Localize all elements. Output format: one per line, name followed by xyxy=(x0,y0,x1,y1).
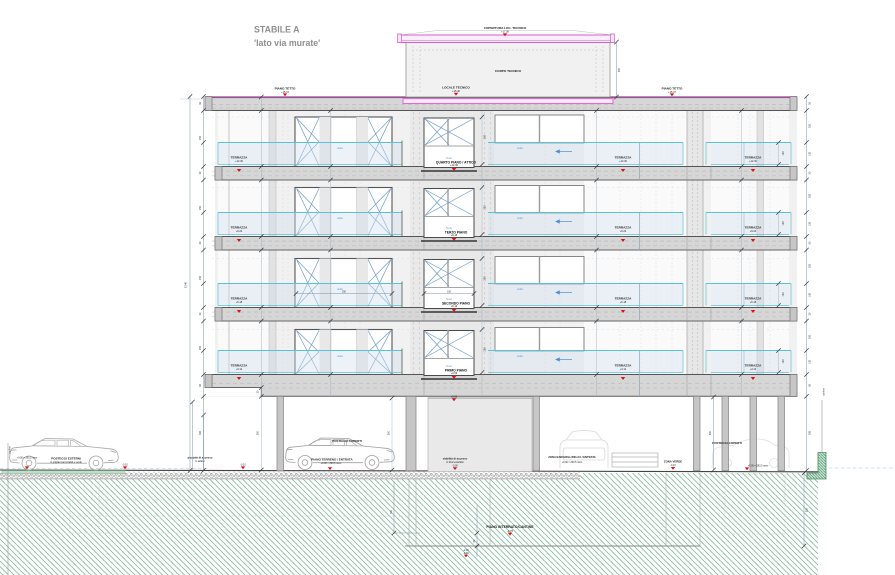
svg-text:vetro: vetro xyxy=(517,216,523,220)
svg-text:250: 250 xyxy=(484,205,487,210)
svg-text:TERRAZZA: TERRAZZA xyxy=(745,226,762,230)
svg-text:300: 300 xyxy=(709,430,712,435)
svg-text:-0.10: -0.10 xyxy=(240,464,246,467)
svg-text:TERRAZZA: TERRAZZA xyxy=(615,297,632,301)
svg-text:confine: confine xyxy=(9,445,12,453)
svg-text:Testo: Testo xyxy=(446,226,453,230)
svg-text:+9.24: +9.24 xyxy=(750,230,757,233)
svg-text:+6.18: +6.18 xyxy=(750,301,757,304)
svg-text:-2.78: -2.78 xyxy=(507,529,513,533)
svg-text:250: 250 xyxy=(484,276,487,281)
svg-text:TERRAZZA: TERRAZZA xyxy=(615,364,632,368)
svg-text:POSTEGGI COPERTI: POSTEGGI COPERTI xyxy=(712,441,742,445)
svg-text:250: 250 xyxy=(199,205,202,210)
svg-text:TERRAZZA: TERRAZZA xyxy=(615,226,632,230)
svg-text:vetro: vetro xyxy=(337,216,343,220)
svg-text:-0.05: -0.05 xyxy=(452,464,458,467)
svg-text:+15.37: +15.37 xyxy=(281,91,289,94)
svg-text:Testo: Testo xyxy=(446,297,453,301)
svg-text:250: 250 xyxy=(618,67,621,72)
svg-text:'lato via murate': 'lato via murate' xyxy=(254,38,320,48)
svg-text:700: 700 xyxy=(390,509,393,514)
svg-text:TERRAZZA: TERRAZZA xyxy=(745,156,762,160)
svg-text:+9.18: +9.18 xyxy=(451,234,458,237)
svg-text:TERRAZZA: TERRAZZA xyxy=(231,364,248,368)
svg-text:+9.24: +9.24 xyxy=(236,230,243,233)
svg-text:LOCALE TECNICO: LOCALE TECNICO xyxy=(442,86,470,90)
svg-text:+12.30: +12.30 xyxy=(619,160,627,163)
svg-text:PIANO INTERRATO/CANTINE: PIANO INTERRATO/CANTINE xyxy=(486,525,534,529)
svg-text:vetro: vetro xyxy=(517,354,523,358)
svg-text:-0.10: -0.10 xyxy=(670,464,676,467)
svg-text:ZONA VERDE: ZONA VERDE xyxy=(664,460,682,464)
svg-text:300: 300 xyxy=(388,430,391,435)
svg-text:+12.30: +12.30 xyxy=(235,160,243,163)
svg-text:vetro: vetro xyxy=(517,287,523,291)
svg-text:250: 250 xyxy=(809,263,812,268)
svg-text:-0.10: -0.10 xyxy=(122,464,128,467)
svg-text:POSTEGGI COPERTI: POSTEGGI COPERTI xyxy=(332,439,362,443)
svg-text:+6.18: +6.18 xyxy=(620,301,627,304)
svg-text:100: 100 xyxy=(809,292,812,297)
svg-text:+3.06: +3.06 xyxy=(451,372,458,375)
svg-text:250: 250 xyxy=(199,275,202,280)
svg-text:in bitume/asfalto: in bitume/asfalto xyxy=(446,461,464,464)
svg-text:TERRAZZA: TERRAZZA xyxy=(231,297,248,301)
svg-text:250: 250 xyxy=(809,334,812,339)
svg-text:+0.00 = 293.5 msm: +0.00 = 293.5 msm xyxy=(748,465,769,468)
svg-text:+15.37: +15.37 xyxy=(668,91,676,94)
svg-text:100: 100 xyxy=(782,221,785,226)
svg-text:+0.00: +0.00 xyxy=(451,396,458,399)
svg-text:+15.40: +15.40 xyxy=(452,90,460,93)
svg-text:+0.00 = 293.5 msm: +0.00 = 293.5 msm xyxy=(17,457,38,460)
svg-text:vetro: vetro xyxy=(337,354,343,358)
svg-text:TERRAZZA: TERRAZZA xyxy=(615,156,632,160)
svg-text:+9.24: +9.24 xyxy=(620,230,627,233)
svg-text:+6.12: +6.12 xyxy=(451,305,458,308)
svg-text:150: 150 xyxy=(447,291,452,294)
svg-text:+3.12: +3.12 xyxy=(750,368,757,371)
svg-text:CORPO TECNICO: CORPO TECNICO xyxy=(495,69,522,73)
svg-text:TERRAZZA: TERRAZZA xyxy=(231,226,248,230)
svg-text:STABILE A: STABILE A xyxy=(254,25,300,35)
svg-text:250: 250 xyxy=(484,134,487,139)
svg-text:ZONA BAR/GRILL/RELAX / ENTRATA: ZONA BAR/GRILL/RELAX / ENTRATA xyxy=(548,455,595,459)
svg-text:300: 300 xyxy=(257,430,260,435)
svg-text:100: 100 xyxy=(809,151,812,156)
svg-text:250: 250 xyxy=(199,345,202,350)
svg-text:100: 100 xyxy=(809,221,812,226)
svg-text:+0.00 = 293.5 msm: +0.00 = 293.5 msm xyxy=(321,462,342,465)
svg-text:vetro: vetro xyxy=(337,146,343,150)
svg-text:Testo: Testo xyxy=(446,156,453,160)
svg-text:vetro: vetro xyxy=(517,146,523,150)
svg-text:-2.90: -2.90 xyxy=(463,552,469,555)
svg-text:250: 250 xyxy=(809,193,812,198)
svg-text:100: 100 xyxy=(782,151,785,156)
svg-text:confine: confine xyxy=(823,387,826,395)
svg-text:+0.00 = 293.5 msm: +0.00 = 293.5 msm xyxy=(562,461,583,464)
svg-text:100: 100 xyxy=(809,359,812,364)
svg-text:+3.12: +3.12 xyxy=(236,368,243,371)
svg-text:305: 305 xyxy=(806,507,809,512)
svg-text:250: 250 xyxy=(199,135,202,140)
svg-text:in grigliati carrozzabili e ve: in grigliati carrozzabili e verde xyxy=(50,461,82,464)
svg-text:250: 250 xyxy=(809,123,812,128)
svg-text:TERRAZZA: TERRAZZA xyxy=(745,297,762,301)
svg-text:305: 305 xyxy=(809,430,812,435)
svg-text:100: 100 xyxy=(782,359,785,364)
svg-text:TERRAZZA: TERRAZZA xyxy=(231,156,248,160)
svg-text:+12.36: +12.36 xyxy=(450,164,458,167)
svg-text:+6.18: +6.18 xyxy=(236,301,243,304)
svg-text:+3.12: +3.12 xyxy=(620,368,627,371)
svg-text:+12.30: +12.30 xyxy=(749,160,757,163)
svg-text:TERRAZZA: TERRAZZA xyxy=(745,364,762,368)
svg-text:100: 100 xyxy=(782,292,785,297)
svg-text:250: 250 xyxy=(484,347,487,352)
svg-text:POSTEGGI ESTERNI: POSTEGGI ESTERNI xyxy=(51,457,81,461)
svg-text:+17.08: +17.08 xyxy=(501,31,509,34)
svg-text:300: 300 xyxy=(199,430,202,435)
svg-text:PIANO TERRENO / ENTRATA: PIANO TERRENO / ENTRATA xyxy=(311,458,353,462)
svg-text:COPERTURA LOC. TECNICO: COPERTURA LOC. TECNICO xyxy=(484,26,527,30)
svg-text:1540: 1540 xyxy=(184,281,188,288)
svg-text:290: 290 xyxy=(342,291,347,294)
svg-text:Testo: Testo xyxy=(446,364,453,368)
svg-text:in asfalto: in asfalto xyxy=(195,460,205,463)
